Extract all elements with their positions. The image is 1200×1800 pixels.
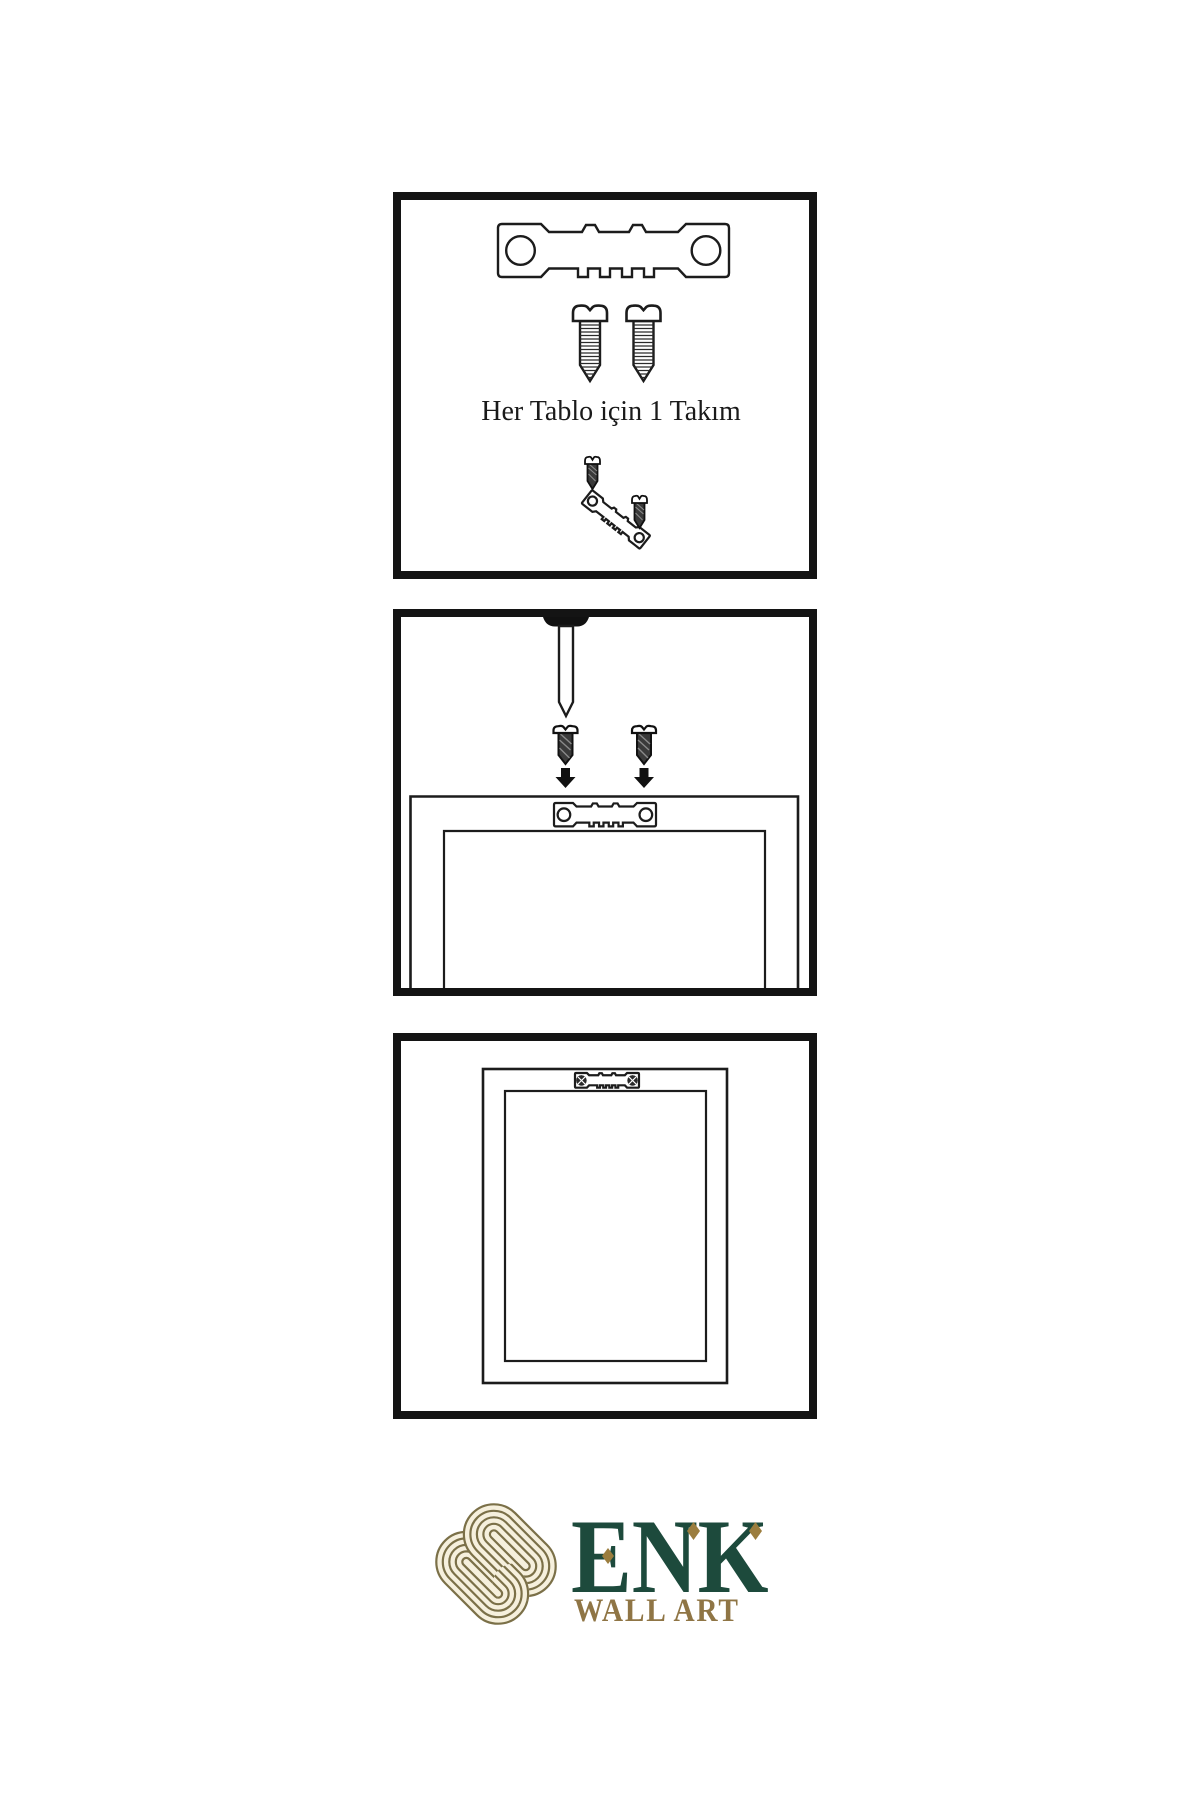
svg-text:Her Tablo için 1 Takım: Her Tablo için 1 Takım	[481, 396, 741, 427]
svg-text:WALL ART: WALL ART	[574, 1591, 740, 1628]
